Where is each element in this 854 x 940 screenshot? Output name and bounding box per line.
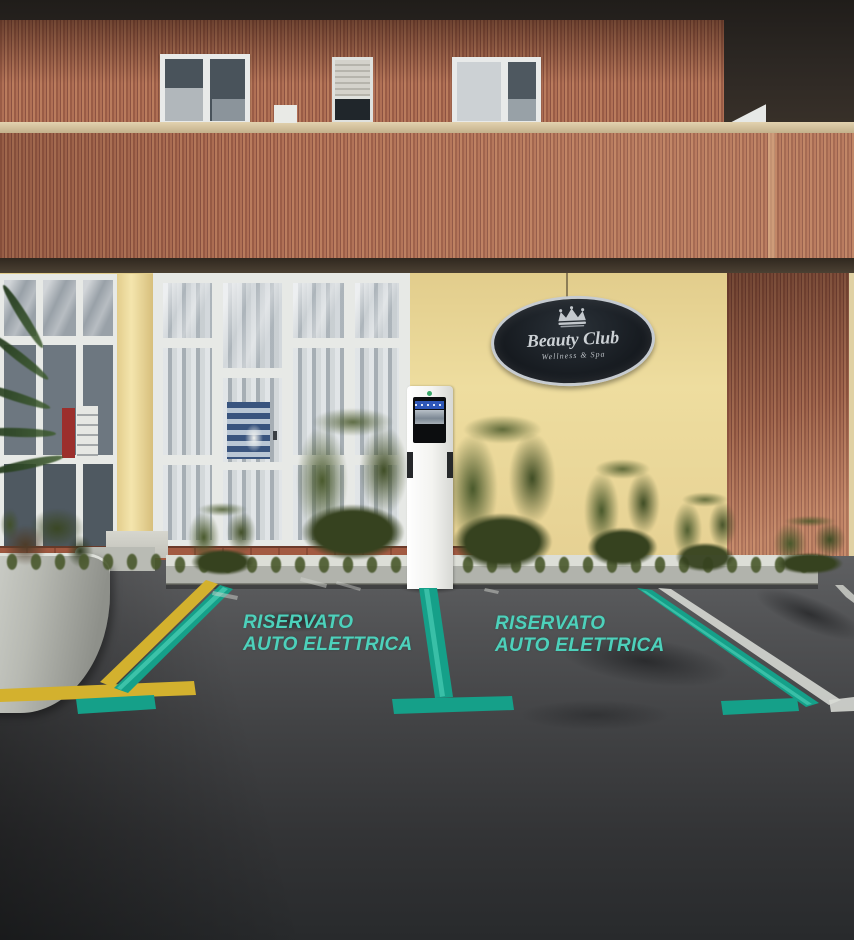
charger-screen-image	[415, 410, 444, 424]
reserved-text-line1: RISERVATO	[495, 613, 665, 635]
charger-connector-left	[407, 452, 413, 478]
roller-shutter	[335, 60, 370, 96]
bush	[283, 398, 423, 570]
reserved-text-line2: AUTO ELETTRICA	[495, 635, 665, 657]
window-pane	[83, 280, 113, 336]
ground-markings	[0, 556, 854, 940]
window-curtain	[165, 88, 203, 121]
transom-pane	[355, 283, 399, 338]
reserved-text-line1: RISERVATO	[243, 612, 413, 634]
sign-subtitle: Wellness & Spa	[541, 350, 605, 362]
upper-window-small	[332, 57, 373, 123]
charger-screen	[413, 397, 446, 443]
line-t-foot-right	[721, 698, 799, 715]
white-scuff	[300, 577, 327, 588]
line-t-foot-center	[392, 696, 514, 714]
white-scuff	[336, 581, 361, 591]
charger-screen-header	[415, 401, 444, 409]
window-poster-white	[77, 406, 98, 460]
transom-pane	[163, 283, 212, 338]
transom-pane	[293, 283, 344, 338]
line-highlight	[117, 587, 228, 690]
window-curtain	[457, 62, 501, 121]
window-poster-red	[62, 408, 75, 458]
sign-title: Beauty Club	[526, 327, 619, 351]
window-reflection	[212, 99, 245, 121]
balcony-post	[274, 105, 297, 123]
balcony-underside-shadow	[0, 258, 854, 274]
parking-scene: Beauty Club Wellness & Spa	[0, 0, 854, 940]
parapet-light-plank	[768, 133, 775, 259]
poster-image	[245, 424, 263, 452]
white-line-fragment	[835, 585, 854, 603]
yellow-pilaster	[117, 274, 153, 554]
charger-connector-right	[447, 452, 453, 478]
window-mullion	[203, 59, 210, 121]
parapet-shading	[0, 133, 854, 259]
upper-window-left	[160, 54, 250, 126]
reserved-text-line2: AUTO ELETTRICA	[243, 634, 413, 656]
balcony-parapet	[0, 133, 854, 259]
white-scuff	[484, 588, 499, 594]
window-glass	[335, 99, 370, 120]
bush	[435, 405, 570, 580]
upper-window-right	[452, 57, 541, 126]
window-mullion	[501, 62, 508, 121]
line-highlight	[641, 590, 812, 705]
window-pane	[43, 280, 76, 336]
sign-conduit	[566, 273, 568, 299]
reserved-text-left: RISERVATO AUTO ELETTRICA	[243, 612, 413, 656]
crown-icon	[552, 305, 591, 329]
glass-pane	[163, 348, 212, 455]
window-reflection	[508, 99, 536, 121]
charger-status-led	[427, 391, 432, 396]
yellow-curb-line-diagonal	[100, 580, 218, 687]
door-transom-pane	[223, 283, 282, 368]
door-handle	[273, 431, 277, 440]
door-poster	[227, 402, 270, 459]
reserved-text-right: RISERVATO AUTO ELETTRICA	[495, 613, 665, 657]
parking-line-white	[658, 588, 841, 705]
